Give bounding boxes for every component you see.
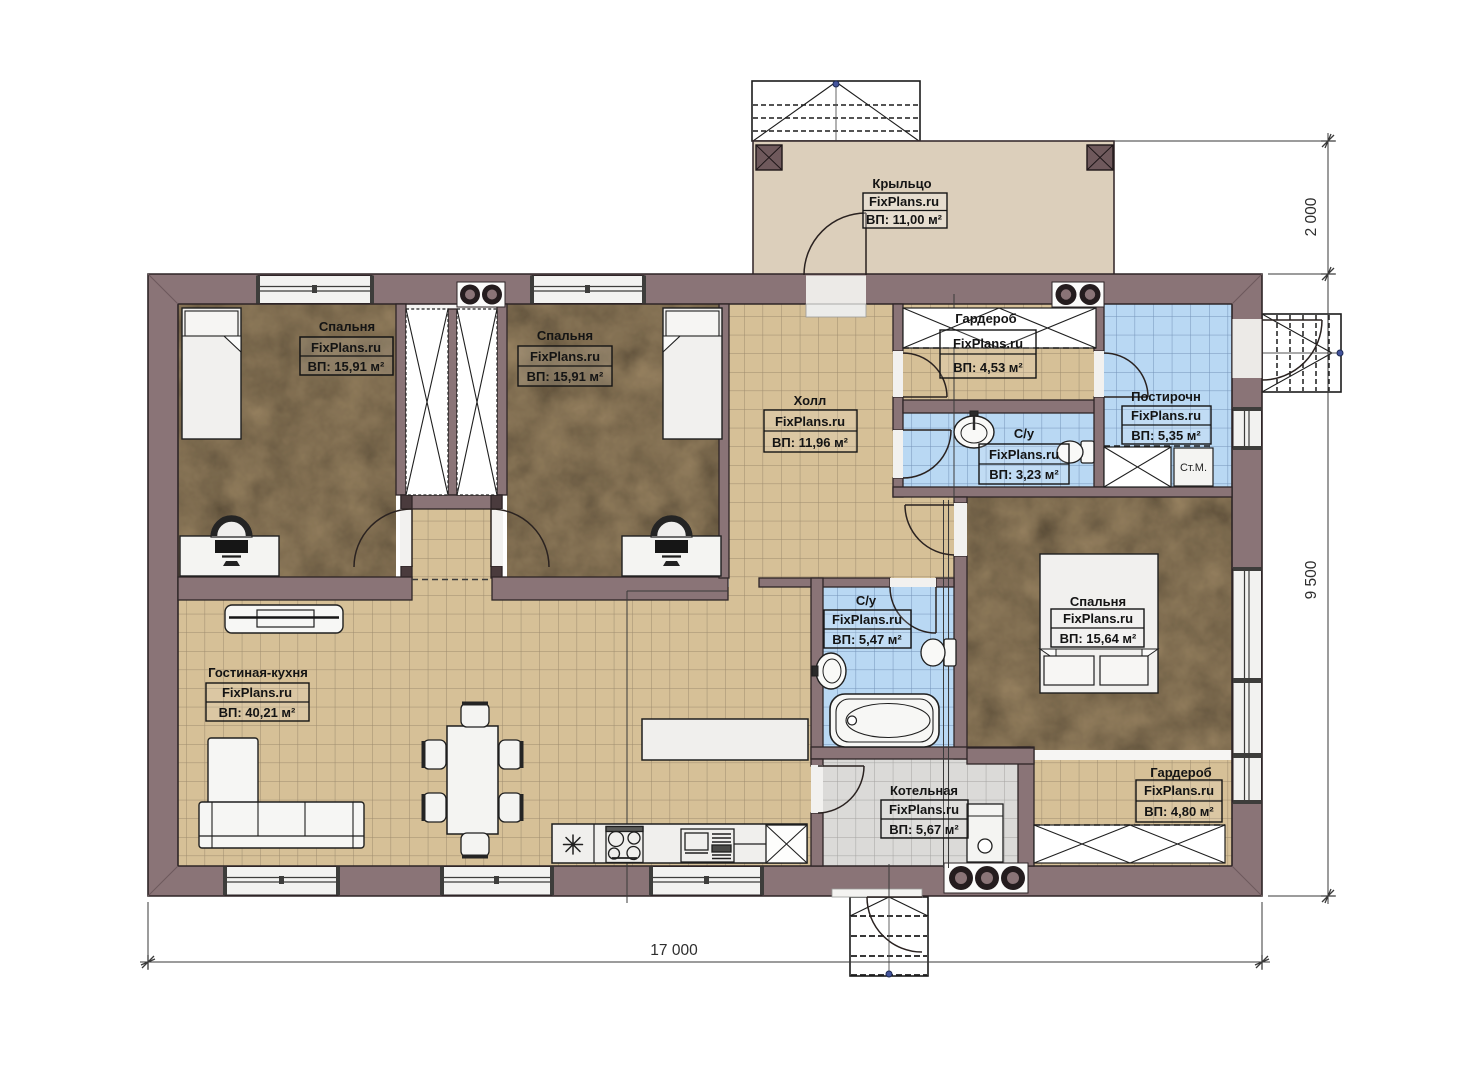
svg-text:FixPlans.ru: FixPlans.ru [869, 194, 939, 209]
svg-text:Спальня: Спальня [1070, 594, 1126, 609]
svg-text:2 000: 2 000 [1303, 197, 1320, 236]
svg-text:FixPlans.ru: FixPlans.ru [222, 685, 292, 700]
svg-text:ВП: 4,53 м²: ВП: 4,53 м² [953, 360, 1023, 375]
svg-text:Холл: Холл [794, 393, 827, 408]
svg-text:ВП: 15,91 м²: ВП: 15,91 м² [308, 359, 385, 374]
svg-text:ВП: 15,64 м²: ВП: 15,64 м² [1060, 631, 1137, 646]
svg-text:FixPlans.ru: FixPlans.ru [311, 340, 381, 355]
svg-text:FixPlans.ru: FixPlans.ru [530, 349, 600, 364]
svg-text:FixPlans.ru: FixPlans.ru [775, 414, 845, 429]
svg-text:17 000: 17 000 [650, 942, 698, 959]
svg-text:ВП: 4,80 м²: ВП: 4,80 м² [1144, 804, 1214, 819]
svg-text:Постирочн: Постирочн [1131, 389, 1201, 404]
svg-text:С/у: С/у [1014, 426, 1035, 441]
svg-text:ВП: 11,96 м²: ВП: 11,96 м² [772, 435, 849, 450]
svg-text:FixPlans.ru: FixPlans.ru [832, 612, 902, 627]
svg-text:FixPlans.ru: FixPlans.ru [1063, 611, 1133, 626]
svg-text:FixPlans.ru: FixPlans.ru [989, 447, 1059, 462]
svg-text:ВП: 5,67 м²: ВП: 5,67 м² [889, 822, 959, 837]
svg-text:Спальня: Спальня [537, 328, 593, 343]
svg-text:С/у: С/у [856, 593, 877, 608]
svg-text:Котельная: Котельная [890, 783, 958, 798]
svg-text:Гардероб: Гардероб [1150, 765, 1211, 780]
svg-text:ВП: 5,47 м²: ВП: 5,47 м² [832, 632, 902, 647]
svg-text:Спальня: Спальня [319, 319, 375, 334]
svg-text:FixPlans.ru: FixPlans.ru [953, 336, 1023, 351]
svg-text:ВП: 11,00 м²: ВП: 11,00 м² [866, 212, 943, 227]
svg-text:Гостиная-кухня: Гостиная-кухня [208, 665, 308, 680]
svg-text:Крыльцо: Крыльцо [872, 176, 931, 191]
svg-text:Гардероб: Гардероб [955, 311, 1016, 326]
svg-text:ВП: 15,91 м²: ВП: 15,91 м² [527, 369, 604, 384]
svg-text:FixPlans.ru: FixPlans.ru [1144, 783, 1214, 798]
svg-text:FixPlans.ru: FixPlans.ru [889, 802, 959, 817]
svg-text:ВП: 3,23 м²: ВП: 3,23 м² [989, 467, 1059, 482]
svg-text:ВП: 40,21 м²: ВП: 40,21 м² [219, 705, 296, 720]
svg-text:FixPlans.ru: FixPlans.ru [1131, 408, 1201, 423]
svg-text:9 500: 9 500 [1303, 560, 1320, 599]
svg-text:Ст.М.: Ст.М. [1180, 462, 1207, 474]
svg-text:ВП: 5,35 м²: ВП: 5,35 м² [1131, 428, 1201, 443]
